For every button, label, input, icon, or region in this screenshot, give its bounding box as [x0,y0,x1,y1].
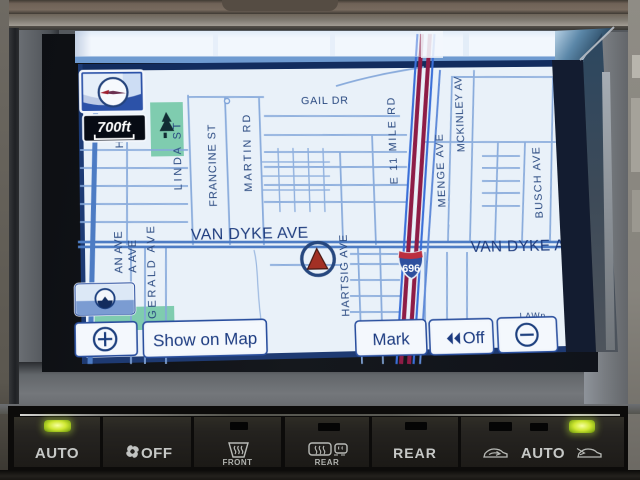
svg-text:VAN DYKE AVE: VAN DYKE AVE [191,224,309,243]
svg-text:GERALD AVE: GERALD AVE [145,224,159,320]
svg-text:FRANCINE ST: FRANCINE ST [206,124,220,207]
svg-text:696: 696 [402,263,420,275]
svg-text:MARTIN RD: MARTIN RD [241,113,255,192]
svg-text:GAIL DR: GAIL DR [301,95,349,107]
svg-text:A AVE: A AVE [127,239,140,273]
svg-text:Show on Map: Show on Map [153,329,258,351]
svg-text:AN AVE: AN AVE [113,231,126,274]
svg-text:Mark: Mark [372,329,410,349]
svg-text:Off: Off [462,328,485,348]
svg-text:LINDA ST: LINDA ST [171,120,185,190]
svg-text:700ft: 700ft [97,120,132,136]
